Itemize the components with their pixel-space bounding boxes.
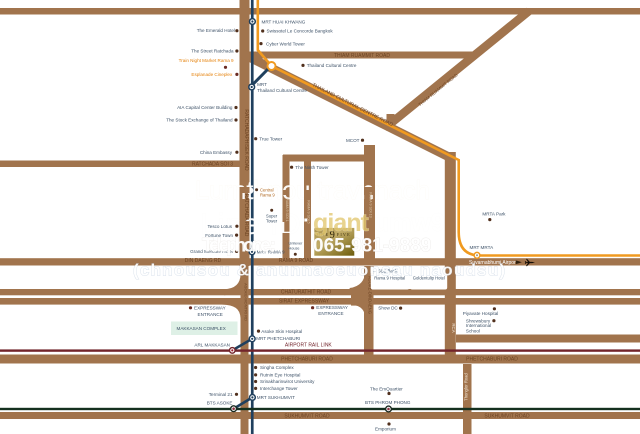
svg-text:Thonglor Road: Thonglor Road [464, 372, 469, 400]
svg-text:MRT HUAI KHWANG: MRT HUAI KHWANG [262, 19, 306, 24]
svg-text:Rutnin Eye Hospital: Rutnin Eye Hospital [260, 373, 300, 378]
svg-text:PHETCHABURI ROAD: PHETCHABURI ROAD [466, 357, 518, 363]
svg-text:SIRAT EXPRESSWAY: SIRAT EXPRESSWAY [279, 298, 330, 304]
svg-text:Interchange Tower: Interchange Tower [260, 386, 298, 391]
svg-text:Tesco Lotus: Tesco Lotus [207, 224, 232, 229]
svg-text:AIRPORT RAIL LINK: AIRPORT RAIL LINK [285, 343, 333, 349]
svg-text:Unilever: Unilever [289, 242, 304, 246]
svg-text:SUKHUMVIT ROAD: SUKHUMVIT ROAD [284, 413, 330, 419]
svg-text:(chnousou & anunnaoeuonsau nao: (chnousou & anunnaoeuonsau naoudsu) [133, 261, 505, 280]
svg-text:House: House [289, 247, 300, 251]
svg-text:ENTRANCE: ENTRANCE [198, 312, 223, 317]
svg-text:Thailand Cultural Centre: Thailand Cultural Centre [257, 88, 307, 93]
svg-text:Rama 9: Rama 9 [260, 193, 275, 198]
svg-text:RAMA 9 SOI 1: RAMA 9 SOI 1 [285, 198, 289, 221]
svg-text:RAMA 9 SOI 13: RAMA 9 SOI 13 [369, 192, 373, 217]
svg-text:Terminal 21: Terminal 21 [209, 392, 233, 397]
svg-text:ENTRANCE: ENTRANCE [318, 311, 343, 316]
svg-text:MAKKASAN COMPLEX: MAKKASAN COMPLEX [177, 326, 226, 331]
svg-text:PHETCHABURI ROAD: PHETCHABURI ROAD [281, 357, 333, 363]
svg-text:ASOKE-MONTRI RD: ASOKE-MONTRI RD [244, 283, 249, 321]
svg-text:Piyavate Hospital: Piyavate Hospital [463, 311, 499, 316]
svg-text:Singha Complex: Singha Complex [260, 365, 294, 370]
svg-text:MRT SUKHUMVIT: MRT SUKHUMVIT [257, 395, 295, 400]
svg-text:Emporium: Emporium [375, 427, 396, 432]
svg-text:Asoke Skin Hospital: Asoke Skin Hospital [261, 329, 302, 334]
svg-text:RAMA 9 SOI 5: RAMA 9 SOI 5 [307, 200, 311, 223]
svg-text:The Ninth Tower: The Ninth Tower [295, 165, 329, 170]
svg-text:Cyber World Tower: Cyber World Tower [266, 41, 305, 46]
svg-text:THIAM RUAMMIT ROAD: THIAM RUAMMIT ROAD [334, 53, 390, 59]
svg-text:umw9: umw9 [374, 209, 445, 237]
svg-text:065-981-9889: 065-981-9889 [313, 236, 431, 257]
svg-text:RATCHADA ROAD: RATCHADA ROAD [243, 194, 249, 237]
svg-text:EXPRESSWAY: EXPRESSWAY [316, 305, 348, 310]
svg-text:CHATURATHIT ROAD: CHATURATHIT ROAD [281, 290, 332, 296]
svg-text:China Embassy: China Embassy [200, 150, 233, 155]
svg-text:RATCHADAPHISEK ROAD: RATCHADAPHISEK ROAD [243, 109, 249, 171]
svg-text:The Emerald Hotel: The Emerald Hotel [197, 28, 235, 33]
svg-text:Lurnthnou travnnach: Lurnthnou travnnach [195, 175, 430, 205]
svg-text:RATCHADA SOI 3: RATCHADA SOI 3 [192, 162, 233, 168]
svg-text:True Tower: True Tower [259, 136, 282, 141]
svg-text:giant: giant [313, 209, 370, 237]
svg-text:MRT MRTA: MRT MRTA [470, 245, 495, 250]
svg-text:MRT: MRT [257, 82, 267, 87]
svg-text:MRT PHETCHABURI: MRT PHETCHABURI [256, 336, 300, 341]
svg-text:RCA: RCA [451, 323, 456, 332]
svg-text:EXPRESSWAY: EXPRESSWAY [194, 306, 226, 311]
svg-text:Swissotel Le Concorde Bangkok: Swissotel Le Concorde Bangkok [267, 29, 334, 34]
svg-text:Esplanade Cineplex: Esplanade Cineplex [191, 72, 233, 77]
svg-text:MRTA Park: MRTA Park [482, 212, 506, 217]
svg-text:Train Night Market Rama 9: Train Night Market Rama 9 [179, 58, 234, 63]
svg-text:School: School [466, 328, 480, 333]
svg-text:Thailand Cultural Centre: Thailand Cultural Centre [307, 63, 357, 68]
svg-text:SUKHUMVIT ROAD: SUKHUMVIT ROAD [484, 413, 530, 419]
svg-text:The Street Ratchada: The Street Ratchada [191, 49, 234, 54]
svg-text:Telephone :: Telephone : [202, 236, 276, 257]
svg-text:AIA Capital Center Building: AIA Capital Center Building [177, 105, 233, 110]
svg-text:Tower: Tower [266, 218, 278, 223]
svg-text:BTS PHROM PHONG: BTS PHROM PHONG [365, 400, 411, 405]
svg-text:Srinakharinwirot University: Srinakharinwirot University [260, 379, 315, 384]
svg-text:BTS ASOKE: BTS ASOKE [207, 400, 233, 405]
svg-text:The Stock Exchange of Thailand: The Stock Exchange of Thailand [166, 118, 233, 123]
svg-text:Show DC: Show DC [378, 306, 398, 311]
svg-text:MCOT: MCOT [346, 138, 360, 143]
svg-text:The EmQuartier: The EmQuartier [370, 387, 403, 392]
svg-text:ARL MAKKASAN: ARL MAKKASAN [194, 343, 230, 348]
